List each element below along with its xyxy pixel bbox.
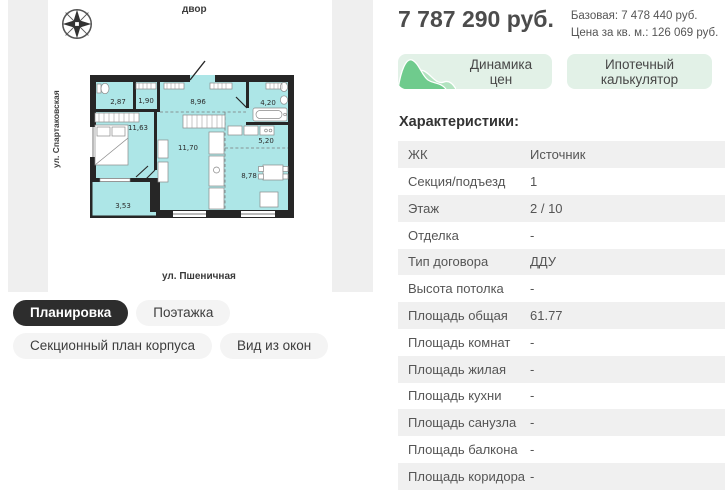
street-strip-right (332, 0, 373, 292)
actions-row: Динамика цен Ипотечный калькулятор (398, 54, 725, 89)
price-dynamics-label: Динамика цен (460, 57, 542, 87)
table-row: Отделка - (398, 222, 725, 249)
courtyard-label: двор (182, 4, 207, 15)
room-area-label: 11,70 (178, 144, 198, 152)
compass-icon (58, 5, 96, 43)
room-area-label: 11,63 (128, 124, 148, 132)
view-tabs: Планировка Поэтажка Секционный план корп… (13, 300, 383, 366)
price-per-sqm: Цена за кв. м.: 126 069 руб. (571, 25, 718, 42)
floor-plan-drawing: 2,87 1,90 8,96 4,20 11,63 11,70 5,20 8,7… (88, 58, 296, 220)
table-row: Площадь общая 61.77 (398, 302, 725, 329)
room-area-label: 3,53 (115, 202, 131, 210)
details-panel: 7 787 290 руб. Базовая: 7 478 440 руб. Ц… (398, 0, 725, 490)
tab-planirovka[interactable]: Планировка (13, 300, 128, 326)
room-area-label: 1,90 (138, 97, 154, 105)
table-row: Тип договора ДДУ (398, 249, 725, 276)
street-strip-left (8, 0, 48, 292)
tab-poetazhka[interactable]: Поэтажка (136, 300, 230, 326)
table-row: Площадь жилая - (398, 356, 725, 383)
price-dynamics-button[interactable]: Динамика цен (398, 54, 552, 89)
characteristics-title: Характеристики: (399, 114, 725, 130)
room-area-label: 4,20 (260, 99, 276, 107)
price-main: 7 787 290 руб. (398, 7, 554, 32)
mortgage-calculator-label: Ипотечный калькулятор (567, 57, 712, 87)
tab-window-view[interactable]: Вид из окон (220, 333, 328, 359)
table-row: Площадь комнат - (398, 329, 725, 356)
room-area-label: 5,20 (258, 137, 274, 145)
price-chart-icon (398, 54, 456, 89)
table-row: Секция/подъезд 1 (398, 168, 725, 195)
table-row: Площадь кухни - (398, 383, 725, 410)
street-label-left: ул. Спартаковская (51, 90, 61, 168)
characteristics-table: ЖК Источник Секция/подъезд 1 Этаж 2 / 10… (398, 141, 725, 489)
price-base: Базовая: 7 478 440 руб. (571, 8, 718, 25)
table-row: Площадь санузла - (398, 409, 725, 436)
price-block: 7 787 290 руб. Базовая: 7 478 440 руб. Ц… (398, 7, 725, 41)
table-row: Площадь коридора - (398, 463, 725, 490)
mortgage-calculator-button[interactable]: Ипотечный калькулятор (567, 54, 712, 89)
table-row: Этаж 2 / 10 (398, 195, 725, 222)
tab-section-plan[interactable]: Секционный план корпуса (13, 333, 212, 359)
table-row: Площадь балкона - (398, 436, 725, 463)
price-sub: Базовая: 7 478 440 руб. Цена за кв. м.: … (571, 7, 718, 41)
table-row: ЖК Источник (398, 141, 725, 168)
room-area-label: 8,96 (190, 98, 206, 106)
street-label-bottom: ул. Пшеничная (162, 271, 236, 282)
floor-plan-map: двор ул. Спартаковская ул. Пшеничная (0, 0, 390, 292)
room-area-label: 2,87 (110, 98, 126, 106)
table-row: Высота потолка - (398, 275, 725, 302)
room-area-label: 8,78 (241, 172, 257, 180)
